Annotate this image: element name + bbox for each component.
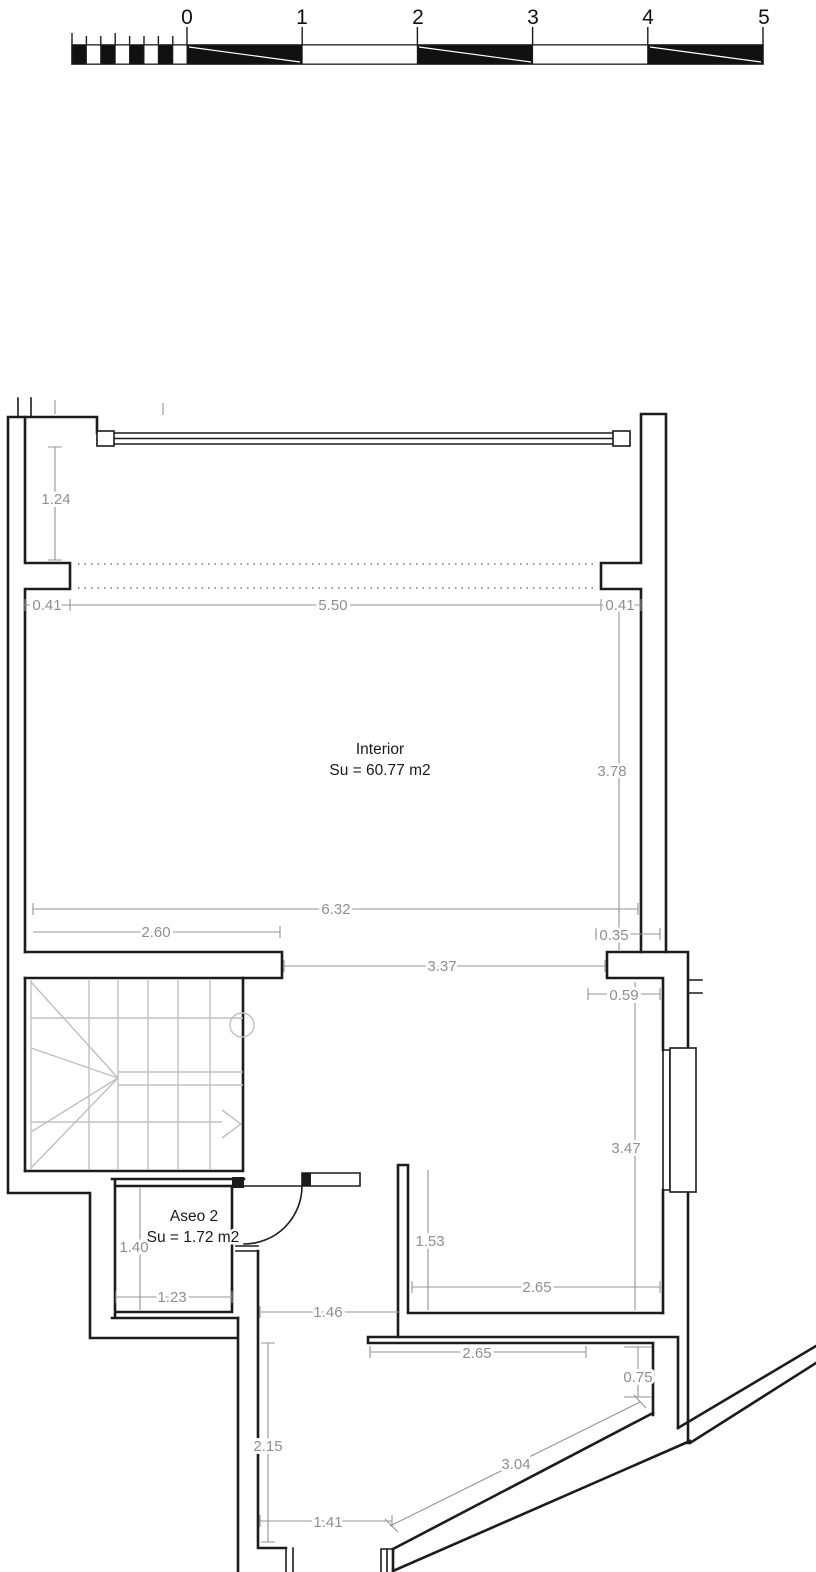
scale-label: 0 (181, 6, 193, 29)
dimension-label: 6.32 (321, 901, 350, 918)
dimension-label: 1.40 (119, 1239, 148, 1256)
room-label-aseo: Aseo 2 (170, 1208, 218, 1225)
room-area-interior: Su = 60.77 m2 (329, 762, 430, 779)
dimension-label: 3.47 (611, 1140, 640, 1157)
dimension-label: 2.65 (522, 1279, 551, 1296)
dimension-label: 2.15 (253, 1438, 282, 1455)
dimension-label: 2.65 (462, 1345, 491, 1362)
walls (8, 398, 816, 1572)
dimension-label: 1.41 (313, 1514, 342, 1531)
scale-major-ticks (187, 27, 763, 45)
dimension-label: 1.23 (157, 1289, 186, 1306)
scale-label: 4 (642, 6, 654, 29)
dotted-lines (78, 564, 596, 588)
scale-label: 5 (758, 6, 770, 29)
dimension-label: 0.41 (32, 597, 61, 614)
dimension-lines (25, 400, 660, 1542)
door-swing-arc (244, 1186, 302, 1244)
scale-label: 3 (527, 6, 539, 29)
dimension-label: 0.35 (599, 927, 628, 944)
stair-direction-arrow (222, 1110, 241, 1138)
dimension-label: 5.50 (318, 597, 347, 614)
dimension-label: 1.46 (313, 1304, 342, 1321)
floor-plan-drawing: 0 1 2 3 4 5 (0, 0, 816, 1572)
staircase (31, 980, 254, 1170)
floor-plan-page: 0 1 2 3 4 5 (0, 0, 816, 1572)
dimension-label: 3.04 (501, 1456, 530, 1473)
scale-minor-ticks (72, 33, 173, 45)
dimension-label: 3.78 (597, 763, 626, 780)
dimension-label: 0.75 (623, 1369, 652, 1386)
dimension-label: 1.24 (41, 491, 70, 508)
scale-label: 2 (412, 6, 424, 29)
scale-bar: 0 1 2 3 4 5 (72, 6, 770, 64)
room-label-interior: Interior (356, 741, 404, 758)
dimension-label: 3.37 (427, 958, 456, 975)
dimension-label: 0.41 (605, 597, 634, 614)
dimension-label: 1.53 (415, 1233, 444, 1250)
dimension-label: 0.59 (609, 987, 638, 1004)
scale-label: 1 (296, 6, 308, 29)
dimension-label: 2.60 (141, 924, 170, 941)
dimension-labels: 1.24 0.41 5.50 0.41 3.78 6.32 2.60 0.35 … (32, 491, 652, 1531)
room-area-aseo: Su = 1.72 m2 (147, 1229, 240, 1246)
